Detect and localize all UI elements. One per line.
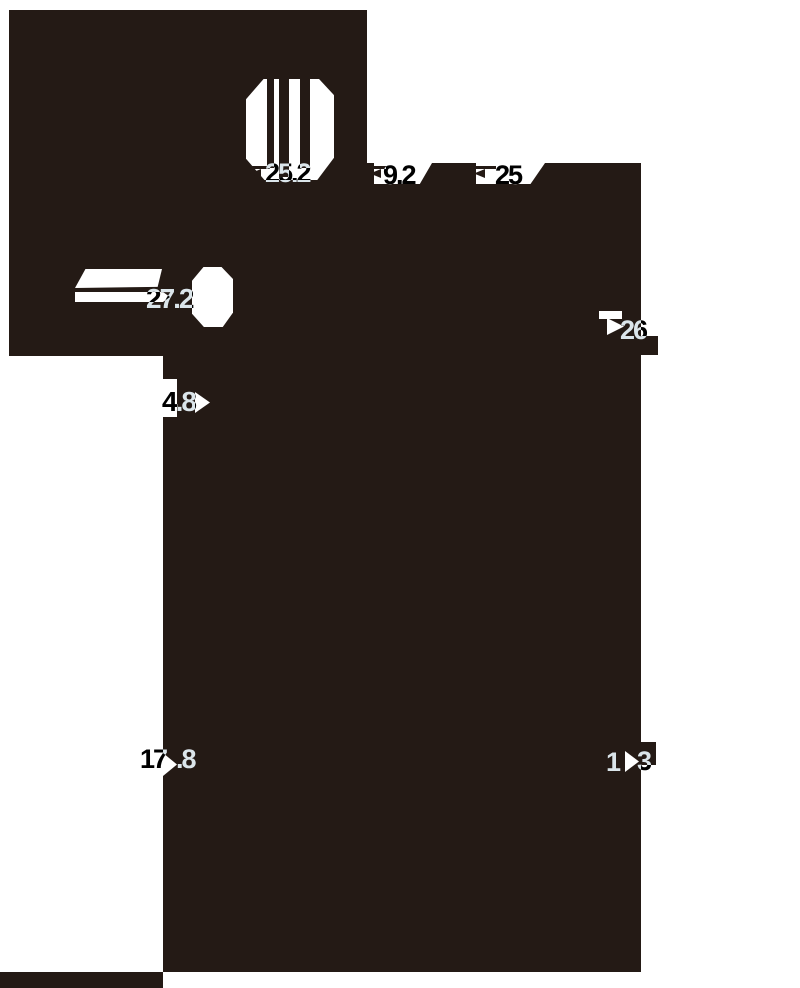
dim-label-foot-width-a: 1 (606, 749, 619, 776)
bolt-head-shape (192, 267, 233, 327)
dimension-diagram: 25.2 9.2 25 27.2 4.8 26 17 .8 1 3 (0, 0, 800, 988)
dim-line-25 (476, 166, 496, 169)
dim-label-slot-plate-width: 25.2 (265, 160, 310, 187)
dim-label-bar-length: 27.2 (146, 285, 193, 313)
dim-label-side-height: 26 (620, 317, 646, 344)
dark-region-center (163, 163, 641, 972)
dim-label-foot-width-b: 3 (637, 748, 650, 775)
plate-slot-3 (300, 79, 310, 168)
dim-label-slot-pitch: 25 (495, 162, 521, 189)
dark-region-bottom-left (0, 972, 163, 988)
dim-label-body-depth-a: 17 (140, 746, 166, 773)
dim-label-body-depth-b: .8 (176, 746, 195, 773)
dim-line-26 (599, 311, 622, 319)
dim-label-bar-thickness: 4.8 (162, 388, 195, 416)
dim-label-slot-gap: 9.2 (383, 162, 415, 189)
plate-slot-1 (267, 79, 274, 168)
